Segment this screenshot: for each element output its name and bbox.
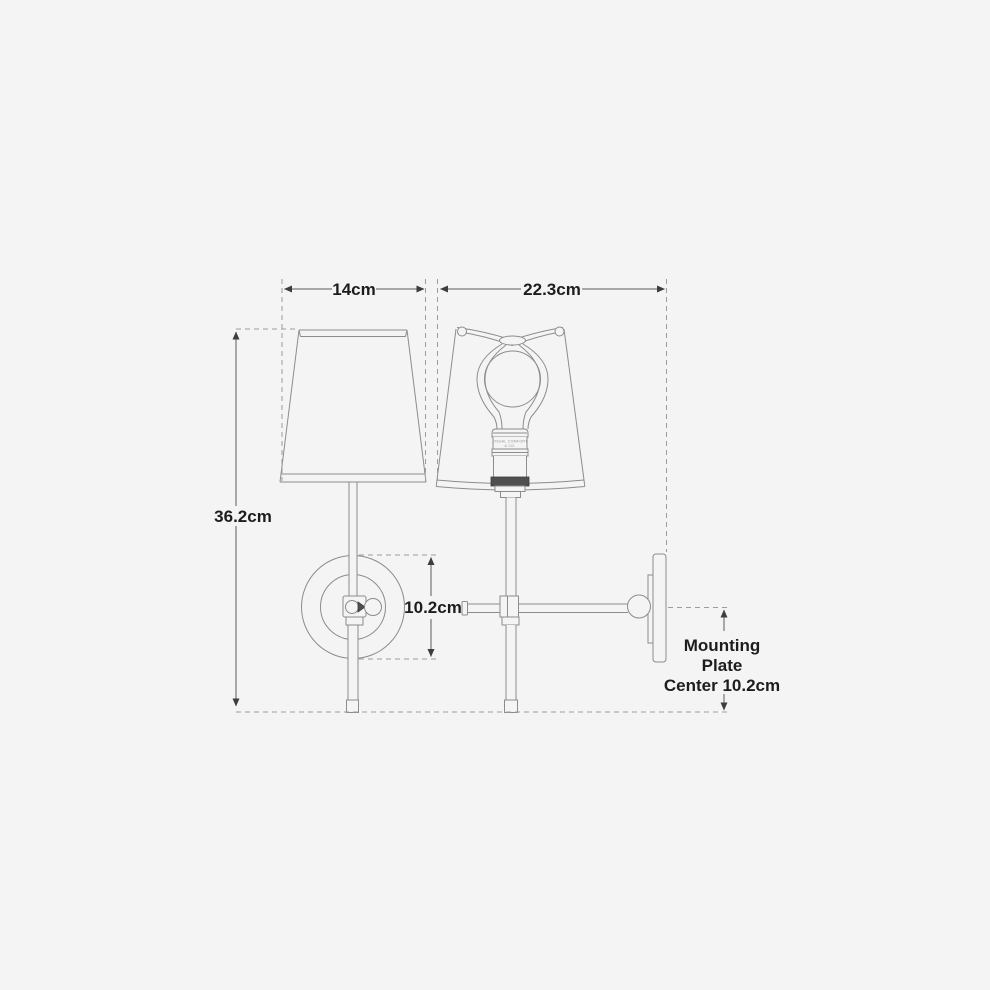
side-stem-tip (505, 700, 518, 713)
stem-lower-fill (348, 625, 358, 700)
dim-label-backplate: 10.2cm (404, 598, 462, 617)
harp-inner-right (519, 345, 540, 429)
socket-body-fill (494, 456, 527, 477)
mounting-note-line3: Center 10.2cm (664, 676, 780, 695)
stem-upper-fill (349, 482, 357, 596)
shade-finial-screw-right (555, 327, 564, 336)
junction-collar (346, 617, 363, 625)
arm-rod-left (468, 604, 501, 613)
diagram-canvas: VISUAL COMFORT & CO. (0, 0, 990, 990)
shade-side-right-slope (564, 329, 584, 480)
socket-step-upper (495, 486, 525, 492)
stem-tip (347, 700, 359, 713)
arm-front-end-cap (462, 602, 468, 616)
arm-ball-side (628, 595, 651, 618)
arm-rod-right (519, 604, 629, 613)
arm-ball-front (365, 599, 382, 616)
shade-right-side (407, 330, 425, 474)
harp-outer-right (523, 344, 548, 429)
dim-label-shade-width: 14cm (332, 280, 375, 299)
socket-brand-line1: VISUAL COMFORT (492, 440, 528, 444)
socket-step-lower (501, 492, 521, 498)
socket-brand-line2: & CO. (504, 444, 515, 448)
harp-inner-left (485, 345, 506, 429)
shade-finial-screw-left (458, 327, 467, 336)
dim-label-height: 36.2cm (214, 507, 272, 526)
side-junction-collar (502, 617, 519, 625)
junction-knob (346, 601, 359, 614)
shade-bottom-rim (280, 474, 426, 482)
dim-label-depth: 22.3cm (523, 280, 581, 299)
shade-top-rim (299, 330, 407, 337)
dimension-annotations: 14cm 22.3cm 36.2cm 10.2cm Mounting Plate… (214, 279, 780, 712)
mounting-note-line2: Plate (702, 656, 743, 675)
side-junction-block (500, 596, 519, 617)
side-stem-lower-fill (506, 625, 516, 700)
sconce-dimension-diagram: VISUAL COMFORT & CO. (0, 0, 990, 990)
shade-side-left-slope (437, 329, 456, 480)
front-view-sconce (280, 330, 426, 713)
side-stem-upper-fill (506, 498, 516, 597)
side-view-sconce: VISUAL COMFORT & CO. (436, 327, 666, 713)
mounting-plate-side (653, 554, 666, 662)
light-bulb (485, 351, 541, 407)
mounting-note-line1: Mounting (684, 636, 760, 655)
socket-knurl-band (491, 477, 529, 486)
harp-outer-left (477, 344, 502, 429)
harp-hub (500, 336, 526, 345)
shade-left-side (281, 330, 299, 474)
